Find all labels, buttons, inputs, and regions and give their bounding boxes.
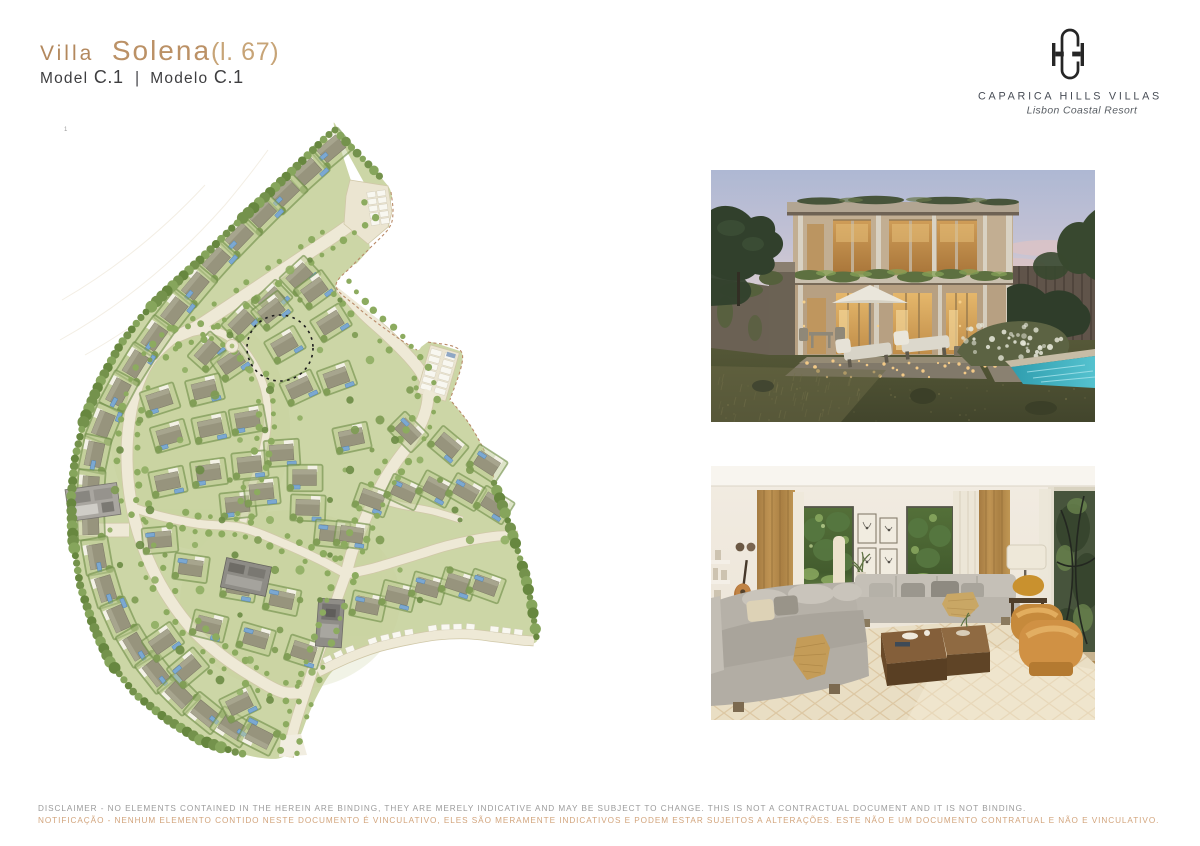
svg-text:1: 1 <box>64 127 68 133</box>
